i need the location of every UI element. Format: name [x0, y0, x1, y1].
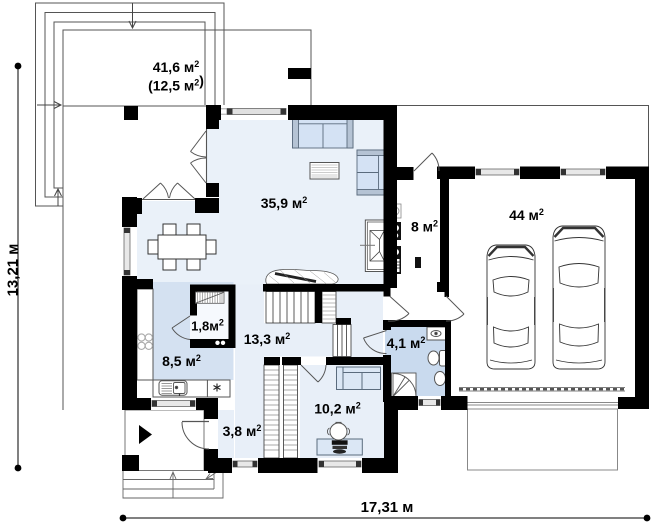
svg-text:13,21 м: 13,21 м: [5, 244, 22, 297]
svg-text:13,3 м2: 13,3 м2: [244, 331, 291, 347]
svg-text:10,2 м2: 10,2 м2: [314, 401, 361, 417]
svg-text:41,6 м2: 41,6 м2: [153, 59, 200, 75]
svg-text:44 м2: 44 м2: [509, 207, 544, 223]
svg-text:4,1 м2: 4,1 м2: [387, 335, 426, 351]
svg-text:3,8 м2: 3,8 м2: [223, 423, 262, 439]
svg-text:35,9 м2: 35,9 м2: [261, 195, 308, 211]
svg-text:17,31 м: 17,31 м: [361, 499, 414, 516]
svg-text:8,5 м2: 8,5 м2: [162, 353, 201, 369]
